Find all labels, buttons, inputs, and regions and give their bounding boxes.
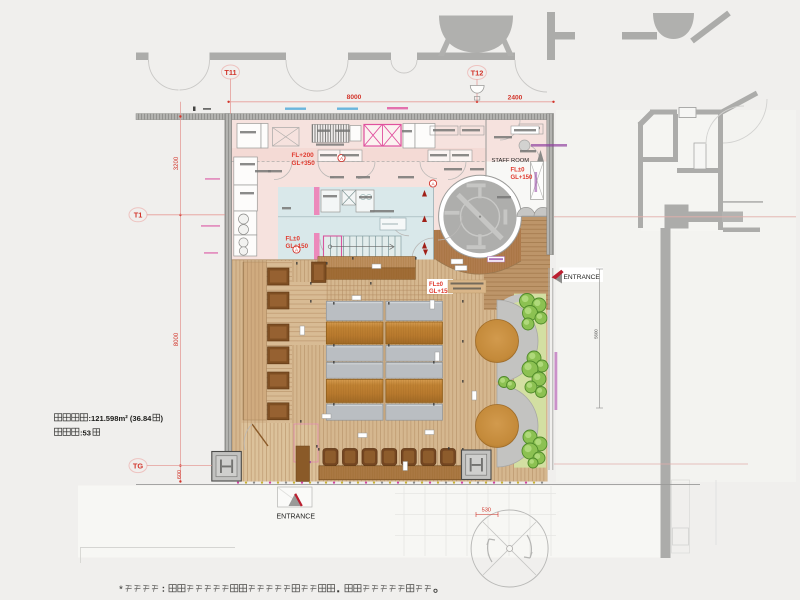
svg-text:GL+150: GL+150	[286, 243, 309, 250]
svg-text:2400: 2400	[508, 95, 523, 102]
svg-text:3200: 3200	[174, 156, 180, 170]
svg-text:T12: T12	[471, 68, 484, 77]
svg-text:8000: 8000	[347, 94, 362, 101]
svg-text:GL+150: GL+150	[511, 175, 534, 181]
svg-text:T11: T11	[224, 68, 236, 77]
svg-text:FL±0: FL±0	[429, 282, 444, 288]
svg-text:FL±0: FL±0	[511, 168, 526, 174]
svg-text:T1: T1	[134, 211, 143, 220]
svg-text:FL+200: FL+200	[292, 152, 315, 159]
svg-text:ENTRANCE: ENTRANCE	[277, 514, 316, 521]
svg-text::53: :53	[80, 429, 91, 438]
svg-text:530: 530	[482, 508, 491, 514]
svg-text:8000: 8000	[174, 332, 180, 346]
svg-text:5600: 5600	[594, 329, 599, 339]
svg-text:STAFF ROOM: STAFF ROOM	[492, 158, 530, 164]
svg-text:GL+350: GL+350	[292, 160, 316, 167]
svg-text:*: *	[119, 585, 123, 596]
svg-text:ENTRANCE: ENTRANCE	[564, 274, 601, 281]
svg-text:TG: TG	[133, 461, 144, 470]
svg-text:FL±0: FL±0	[286, 236, 301, 243]
svg-text:600: 600	[177, 470, 183, 479]
svg-text::121.598m² (36.84: :121.598m² (36.84	[89, 414, 153, 423]
